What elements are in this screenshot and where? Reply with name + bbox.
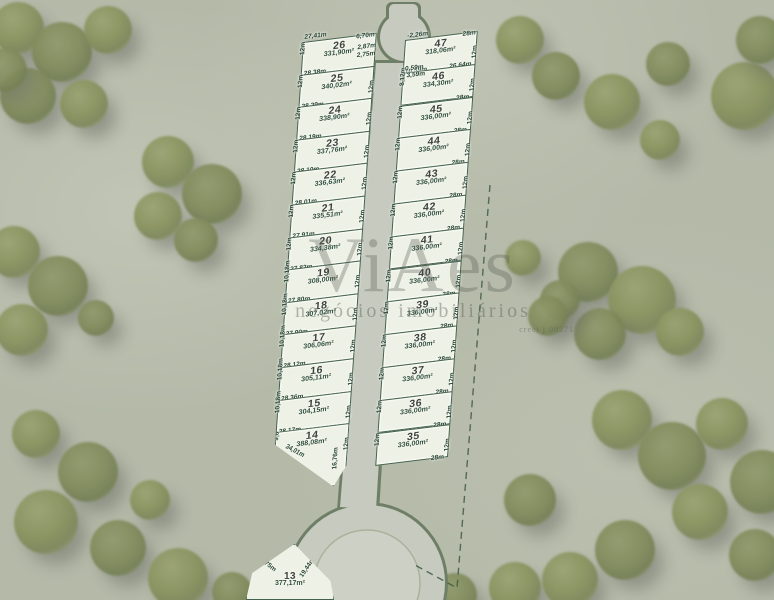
lot-dim-right: 12m xyxy=(465,143,472,157)
lot-dim-right: 12m xyxy=(346,404,353,418)
subdivision-plat-map: 26 331,90m² 27,41m 28,38m 12m 6,70m 2,87… xyxy=(0,0,774,600)
lot-dim-right: 12m xyxy=(444,437,451,451)
lot-dim-left: 12m xyxy=(298,74,305,88)
lot-dim-left: 12m xyxy=(300,41,307,55)
lot-dim-right: 12m xyxy=(350,339,357,353)
lot-dim-left: 12m xyxy=(377,399,384,413)
lot-dim-right: 12m xyxy=(449,372,456,386)
lot-dim-left: 12m xyxy=(393,170,400,184)
lot-dim-right: 12m xyxy=(353,307,360,321)
lot-dim-right: 12m xyxy=(451,339,458,353)
lot-dim-left: 12m xyxy=(397,105,404,119)
lot-dim-right: 12m xyxy=(460,208,467,222)
lot-dim-left: 12m xyxy=(384,301,391,315)
lot-dim-right: 12m xyxy=(463,176,470,190)
lot-dim-left: 12m xyxy=(291,171,298,185)
lot-dim-right: 12m xyxy=(458,241,465,255)
lot-dim-left: 12m xyxy=(289,204,296,218)
lot-dim-right: 12m xyxy=(362,177,369,191)
lot-dim-right: 12m xyxy=(357,242,364,256)
lot-dim-left: 12m xyxy=(375,432,382,446)
lot-dim-top: 27,41m xyxy=(304,32,327,41)
lot-dim-right: 12m xyxy=(454,306,461,320)
lot-dim-left: 12m xyxy=(386,268,393,282)
lot-dim-left: 12m xyxy=(296,106,303,120)
lot-dim-left: 12m xyxy=(381,334,388,348)
lot-dim-right: 12m xyxy=(355,274,362,288)
lot-dim-left: 12m xyxy=(388,236,395,250)
lot-dim-right: 12m xyxy=(467,110,474,124)
lot-dim-extra: 2,75m xyxy=(356,51,375,60)
lot-dim-right: 12m xyxy=(364,144,371,158)
lot-area: 377,17m² xyxy=(247,580,333,587)
lot-dim-left: 12m xyxy=(391,203,398,217)
lot-dim-right: 12m xyxy=(470,77,477,91)
lot-dim-right: 12m xyxy=(369,79,376,93)
lot-dim-right: 12m xyxy=(456,274,463,288)
lot-dim-right: 12m xyxy=(359,209,366,223)
lot-dim-left: 12m xyxy=(395,138,402,152)
lot-dim-right: 12m xyxy=(447,405,454,419)
lot-14: 14 388,08m² 12m 9,64m 16,76m 34,01m xyxy=(271,423,349,494)
lot-dim-right: 12m xyxy=(366,112,373,126)
lot-dim-right: 12m xyxy=(348,372,355,386)
lot-dim-extra: 16,76m xyxy=(332,447,340,470)
lot-dim-right: 12m xyxy=(472,45,479,59)
lot-dim-left: 12m xyxy=(286,237,293,251)
lot-dim-left: 12m xyxy=(379,367,386,381)
lot-dim-left: 12m xyxy=(293,139,300,153)
